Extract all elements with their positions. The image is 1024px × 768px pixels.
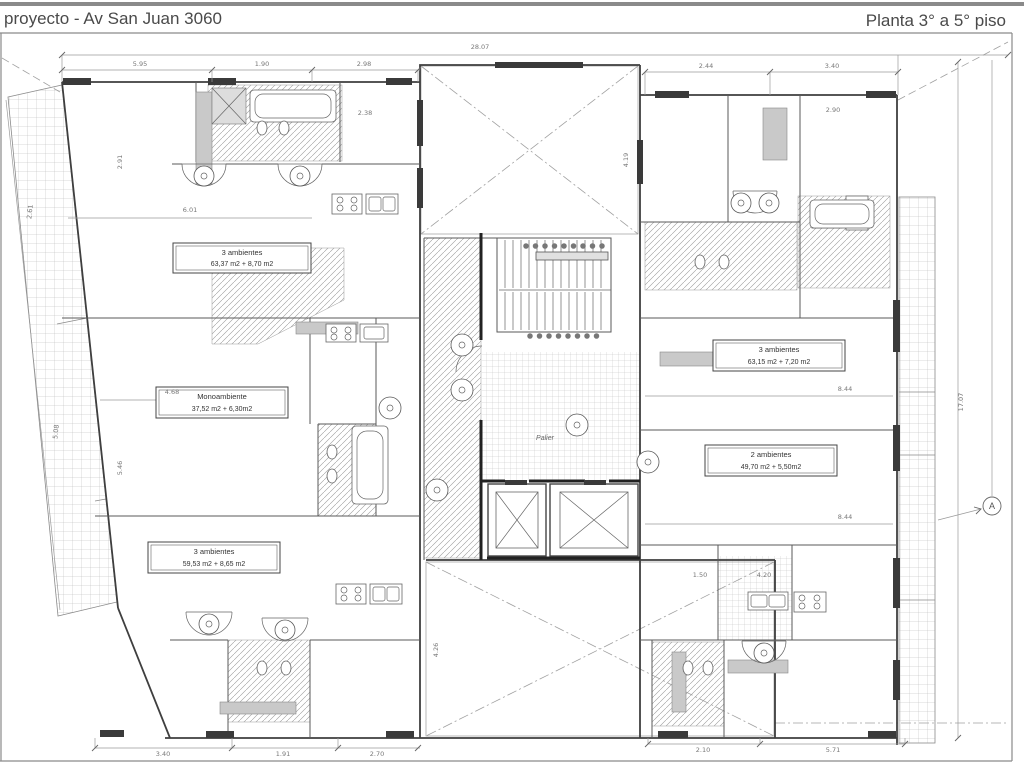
unit-label-ne: 3 ambientes 63,15 m2 + 7,20 m2 <box>713 340 845 371</box>
bathtub-ne <box>810 200 874 228</box>
axis-marker: A <box>938 497 1001 520</box>
dimension-label: 2.70 <box>370 750 384 758</box>
dimension-label: 2.10 <box>696 746 710 754</box>
dimension-label: 5.08 <box>51 424 60 439</box>
dimension-label: 2.91 <box>116 155 124 169</box>
dimension-label: 4.26 <box>432 643 440 657</box>
sink-nw <box>366 194 398 214</box>
stove-sw <box>336 584 366 604</box>
dimension-label: 1.91 <box>276 750 290 758</box>
dimension-label: 4.68 <box>165 388 179 396</box>
dimension-label: 4.20 <box>757 571 771 579</box>
unit-type: 3 ambientes <box>194 547 235 556</box>
dimension-label: 3.40 <box>825 62 839 70</box>
dimension-label: 1.90 <box>255 60 269 68</box>
dimension-label: 5.46 <box>116 461 124 475</box>
dimension-label: 2.38 <box>358 109 372 117</box>
dimension-label: 28.07 <box>471 43 490 51</box>
dimension-label: 6.01 <box>183 206 197 214</box>
dimension-label: 1.50 <box>693 571 707 579</box>
unit-type: 2 ambientes <box>751 450 792 459</box>
sink-sw <box>370 584 402 604</box>
stove-e <box>794 592 826 612</box>
dimension-label: 8.44 <box>838 513 852 521</box>
unit-area: 63,15 m2 + 7,20 m2 <box>748 359 811 366</box>
unit-area: 49,70 m2 + 5,50m2 <box>741 464 802 471</box>
unit-type: Monoambiente <box>197 392 247 401</box>
dimension-label: 3.40 <box>156 750 170 758</box>
dimension-label: 2.98 <box>357 60 371 68</box>
staircase <box>497 238 611 336</box>
stove-nw <box>332 194 362 214</box>
sheet-floor-label: Planta 3° a 5° piso <box>866 11 1006 30</box>
unit-area: 59,53 m2 + 8,65 m2 <box>183 561 246 568</box>
elevator-shafts <box>488 480 638 556</box>
balcony-left <box>8 85 117 616</box>
unit-label-nw: 3 ambientes 63,37 m2 + 8,70 m2 <box>173 243 311 273</box>
unit-type: 3 ambientes <box>222 248 263 257</box>
floor-plan-canvas: proyecto - Av San Juan 3060 Planta 3° a … <box>0 0 1024 768</box>
unit-area: 63,37 m2 + 8,70 m2 <box>211 261 274 268</box>
axis-marker-letter: A <box>989 501 995 511</box>
sheet-title: proyecto - Av San Juan 3060 <box>4 9 222 28</box>
stove-w <box>326 324 356 342</box>
unit-area: 37,52 m2 + 6,30m2 <box>192 406 253 413</box>
unit-label-sw: 3 ambientes 59,53 m2 + 8,65 m2 <box>148 542 280 573</box>
dimension-label: 5.71 <box>826 746 840 754</box>
unit-type: 3 ambientes <box>759 345 800 354</box>
dimension-label: 2.90 <box>826 106 840 114</box>
dimension-label: 8.44 <box>838 385 852 393</box>
unit-label-e: 2 ambientes 49,70 m2 + 5,50m2 <box>705 445 837 476</box>
bathtub-w <box>352 426 388 504</box>
corner-projection-lines <box>2 42 1008 100</box>
shower-stall <box>212 88 246 124</box>
patio-top <box>421 66 638 234</box>
dimension-label: 4.19 <box>622 153 630 167</box>
balcony-right <box>899 197 935 743</box>
dimension-label: 2.44 <box>699 62 713 70</box>
stair-handrail <box>536 252 608 260</box>
dimension-label: 2.61 <box>25 204 34 219</box>
dimension-label: 17.07 <box>957 393 965 412</box>
sink-e <box>748 592 788 610</box>
bathtub-nw <box>250 90 336 122</box>
sink-w <box>360 324 388 342</box>
sheet-top-rule <box>0 2 1024 6</box>
dimension-label: 5.95 <box>133 60 147 68</box>
palier-label: Palier <box>536 435 555 442</box>
